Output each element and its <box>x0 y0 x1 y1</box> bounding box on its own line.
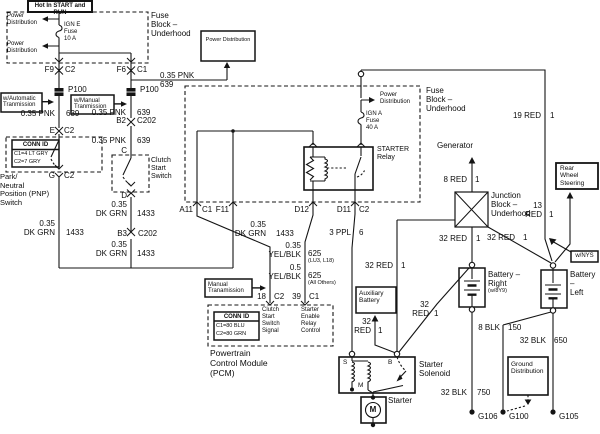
pin-b3-connector: C202 <box>138 229 157 238</box>
wire-red32-diag: 32 RED <box>412 300 429 318</box>
wire-pnk-man2-circuit: 639 <box>137 136 150 145</box>
pin-39-connector: C1 <box>309 292 319 301</box>
wire-yelblk-1-note: (LU3, L18) <box>308 258 334 264</box>
pin-e-connector: C2 <box>64 126 74 135</box>
ground-g106: G106 <box>478 412 498 421</box>
pin-a11-connector: C1 <box>202 205 212 214</box>
ground-g100: G100 <box>509 412 529 421</box>
solenoid-terminal-b: B <box>388 359 392 366</box>
wire-red13: 13 RED <box>525 201 542 219</box>
solenoid-terminal-s: S <box>343 359 347 366</box>
generator-offpage: Generator <box>437 141 473 150</box>
pnp-switch-label: Park/ Neutral Position (PNP) Switch <box>0 173 49 208</box>
wire-red32-br-circuit: 1 <box>476 234 480 243</box>
wire-red19-circuit: 1 <box>550 111 554 120</box>
wire-pnk-man2: 0.35 PNK <box>92 136 126 145</box>
pin-18: 18 <box>257 292 266 301</box>
wire-yelblk-2-note: (All Others) <box>308 280 336 286</box>
pin-b2: B2 <box>116 116 126 125</box>
wire-red19: 19 RED <box>513 111 541 120</box>
arrowheads-and-dots <box>42 16 573 427</box>
power-distribution-offpage-2: Power Distribution <box>7 41 37 55</box>
wire-dkgrn-man1: 0.35 DK GRN <box>96 200 127 218</box>
pin-18-connector: C2 <box>274 292 284 301</box>
pin-f11: F11 <box>216 205 229 214</box>
pcm-starter-enable-label: Starter Enable Relay Control <box>301 307 320 335</box>
conn-id-2-row1: C1=80 BLU <box>216 323 245 329</box>
wire-red32-aux: 32 RED <box>354 317 371 335</box>
power-distribution-offpage-3: Power Distribution <box>380 92 410 106</box>
w-nys-tag: w/NYS <box>571 253 598 260</box>
wire-dkgrn-man1-circuit: 1433 <box>137 209 155 218</box>
wire-yelblk-1: 0.35 YEL/BLK <box>269 241 301 259</box>
pin-f9-connector: C2 <box>65 65 75 74</box>
battery-right-option-note: (w/8Y9) <box>488 288 507 294</box>
connector-p100-right: P100 <box>140 85 159 94</box>
wire-pnk-639-top: 0.35 PNK 639 <box>160 71 194 89</box>
conn-id-1-row2: C2=7 GRY <box>14 159 41 165</box>
wire-ppl-circuit: 6 <box>359 228 363 237</box>
power-distribution-offpage-1: Power Distribution <box>7 13 37 27</box>
pin-b2-connector: C202 <box>137 116 156 125</box>
wire-red8: 8 RED <box>443 175 467 184</box>
fuse-block-underhood-label-2: Fuse Block – Underhood <box>426 86 466 114</box>
ground-g105: G105 <box>559 412 579 421</box>
starter-solenoid-label: Starter Solenoid <box>419 360 450 378</box>
wire-blk8: 8 BLK <box>478 323 500 332</box>
pin-39: 39 <box>292 292 301 301</box>
pin-d: D <box>121 191 127 200</box>
pin-f6-connector: C1 <box>137 65 147 74</box>
starter-label: Starter <box>388 396 412 405</box>
power-distribution-box-label: Power Distribution <box>201 37 255 43</box>
pcm-label: Powertrain Control Module (PCM) <box>210 349 268 378</box>
wire-red32-jb: 32 RED <box>365 261 393 270</box>
conn-id-1-title: CONN ID <box>12 142 59 149</box>
wire-pnk-auto: 0.35 PNK <box>21 109 55 118</box>
wire-red32-aux-circuit: 1 <box>378 326 382 335</box>
pin-g-connector: C2 <box>64 171 74 180</box>
wire-pnk-auto-circuit: 639 <box>66 109 79 118</box>
wire-dkgrn-man2-circuit: 1433 <box>137 249 155 258</box>
wire-blk8-circuit: 150 <box>508 323 521 332</box>
wire-red32-diag-circuit: 1 <box>434 309 438 318</box>
w-automatic-transmission-tag: w/Automatic Tranmission <box>3 96 36 110</box>
pin-c: C <box>121 146 127 155</box>
pin-d11: D11 <box>337 205 351 214</box>
pin-g: G <box>49 171 55 180</box>
pcm-clutch-signal-label: Clutch Start Switch Signal <box>262 307 280 335</box>
pin-e: E <box>50 126 55 135</box>
pin-d12: D12 <box>294 205 309 214</box>
wire-blk32-750-circuit: 750 <box>477 388 490 397</box>
wire-ppl: 3 PPL <box>329 228 351 237</box>
wire-blk32-650-circuit: 650 <box>554 336 567 345</box>
hot-in-start-run-label: Hot In START and RUN <box>28 3 92 17</box>
pin-a11: A11 <box>179 205 193 214</box>
pin-b3: B3 <box>117 229 127 238</box>
ground-distribution-box-label: Ground Distribution <box>511 361 544 376</box>
pin-f9: F9 <box>45 65 54 74</box>
battery-right-label: Battery – Right <box>488 270 520 288</box>
conn-id-2-row2: C2=80 GRN <box>216 331 246 337</box>
conn-id-1-row1: C1=4 LT GRY <box>14 151 48 157</box>
wire-red32-jb-circuit: 1 <box>401 261 405 270</box>
wire-red32-br: 32 RED <box>439 234 467 243</box>
conn-id-2-title: CONN ID <box>214 314 259 321</box>
wire-blk32-650: 32 BLK <box>520 336 546 345</box>
wire-dkgrn-pcm: 0.35 DK GRN <box>235 220 266 238</box>
fuse-block-underhood-label-1: Fuse Block – Underhood <box>151 11 191 39</box>
solenoid-terminal-m: M <box>358 382 363 389</box>
wire-blk32-750: 32 BLK <box>441 388 467 397</box>
connector-p100-left: P100 <box>68 85 87 94</box>
motor-m-glyph: M <box>366 405 380 414</box>
wire-red8-circuit: 1 <box>475 175 479 184</box>
wire-red32-bl-circuit: 1 <box>523 233 527 242</box>
rear-wheel-steering-box-label: Rear Wheel Steering <box>560 165 584 187</box>
pin-f6: F6 <box>117 65 126 74</box>
starter-relay-label: STARTER Relay <box>377 146 409 162</box>
pin-d11-connector: C2 <box>359 205 369 214</box>
clutch-start-switch-label: Clutch Start Switch <box>151 157 172 181</box>
wiring-diagram: Hot In START and RUN Fuse Block – Underh… <box>0 0 600 434</box>
wire-dkgrn-man2: 0.35 DK GRN <box>96 240 127 258</box>
manual-transmission-tag: Manual Tranamission <box>208 282 244 296</box>
auxiliary-battery-box-label: Auxiliary Battery <box>359 290 384 305</box>
wire-dkgrn-left-circuit: 1433 <box>66 228 84 237</box>
ign-a-fuse-label: IGN A Fuse 40 A <box>366 111 382 132</box>
wire-dkgrn-pcm-circuit: 1433 <box>276 229 294 238</box>
ign-e-fuse-label: IGN E Fuse 10 A <box>64 22 80 43</box>
wire-dkgrn-left: 0.35 DK GRN <box>24 219 55 237</box>
battery-left-label: Battery – Left <box>570 270 600 298</box>
wire-yelblk-2: 0.5 YEL/BLK <box>269 263 301 281</box>
wire-red32-bl: 32 RED <box>487 233 515 242</box>
wire-red13-circuit: 1 <box>549 210 553 219</box>
